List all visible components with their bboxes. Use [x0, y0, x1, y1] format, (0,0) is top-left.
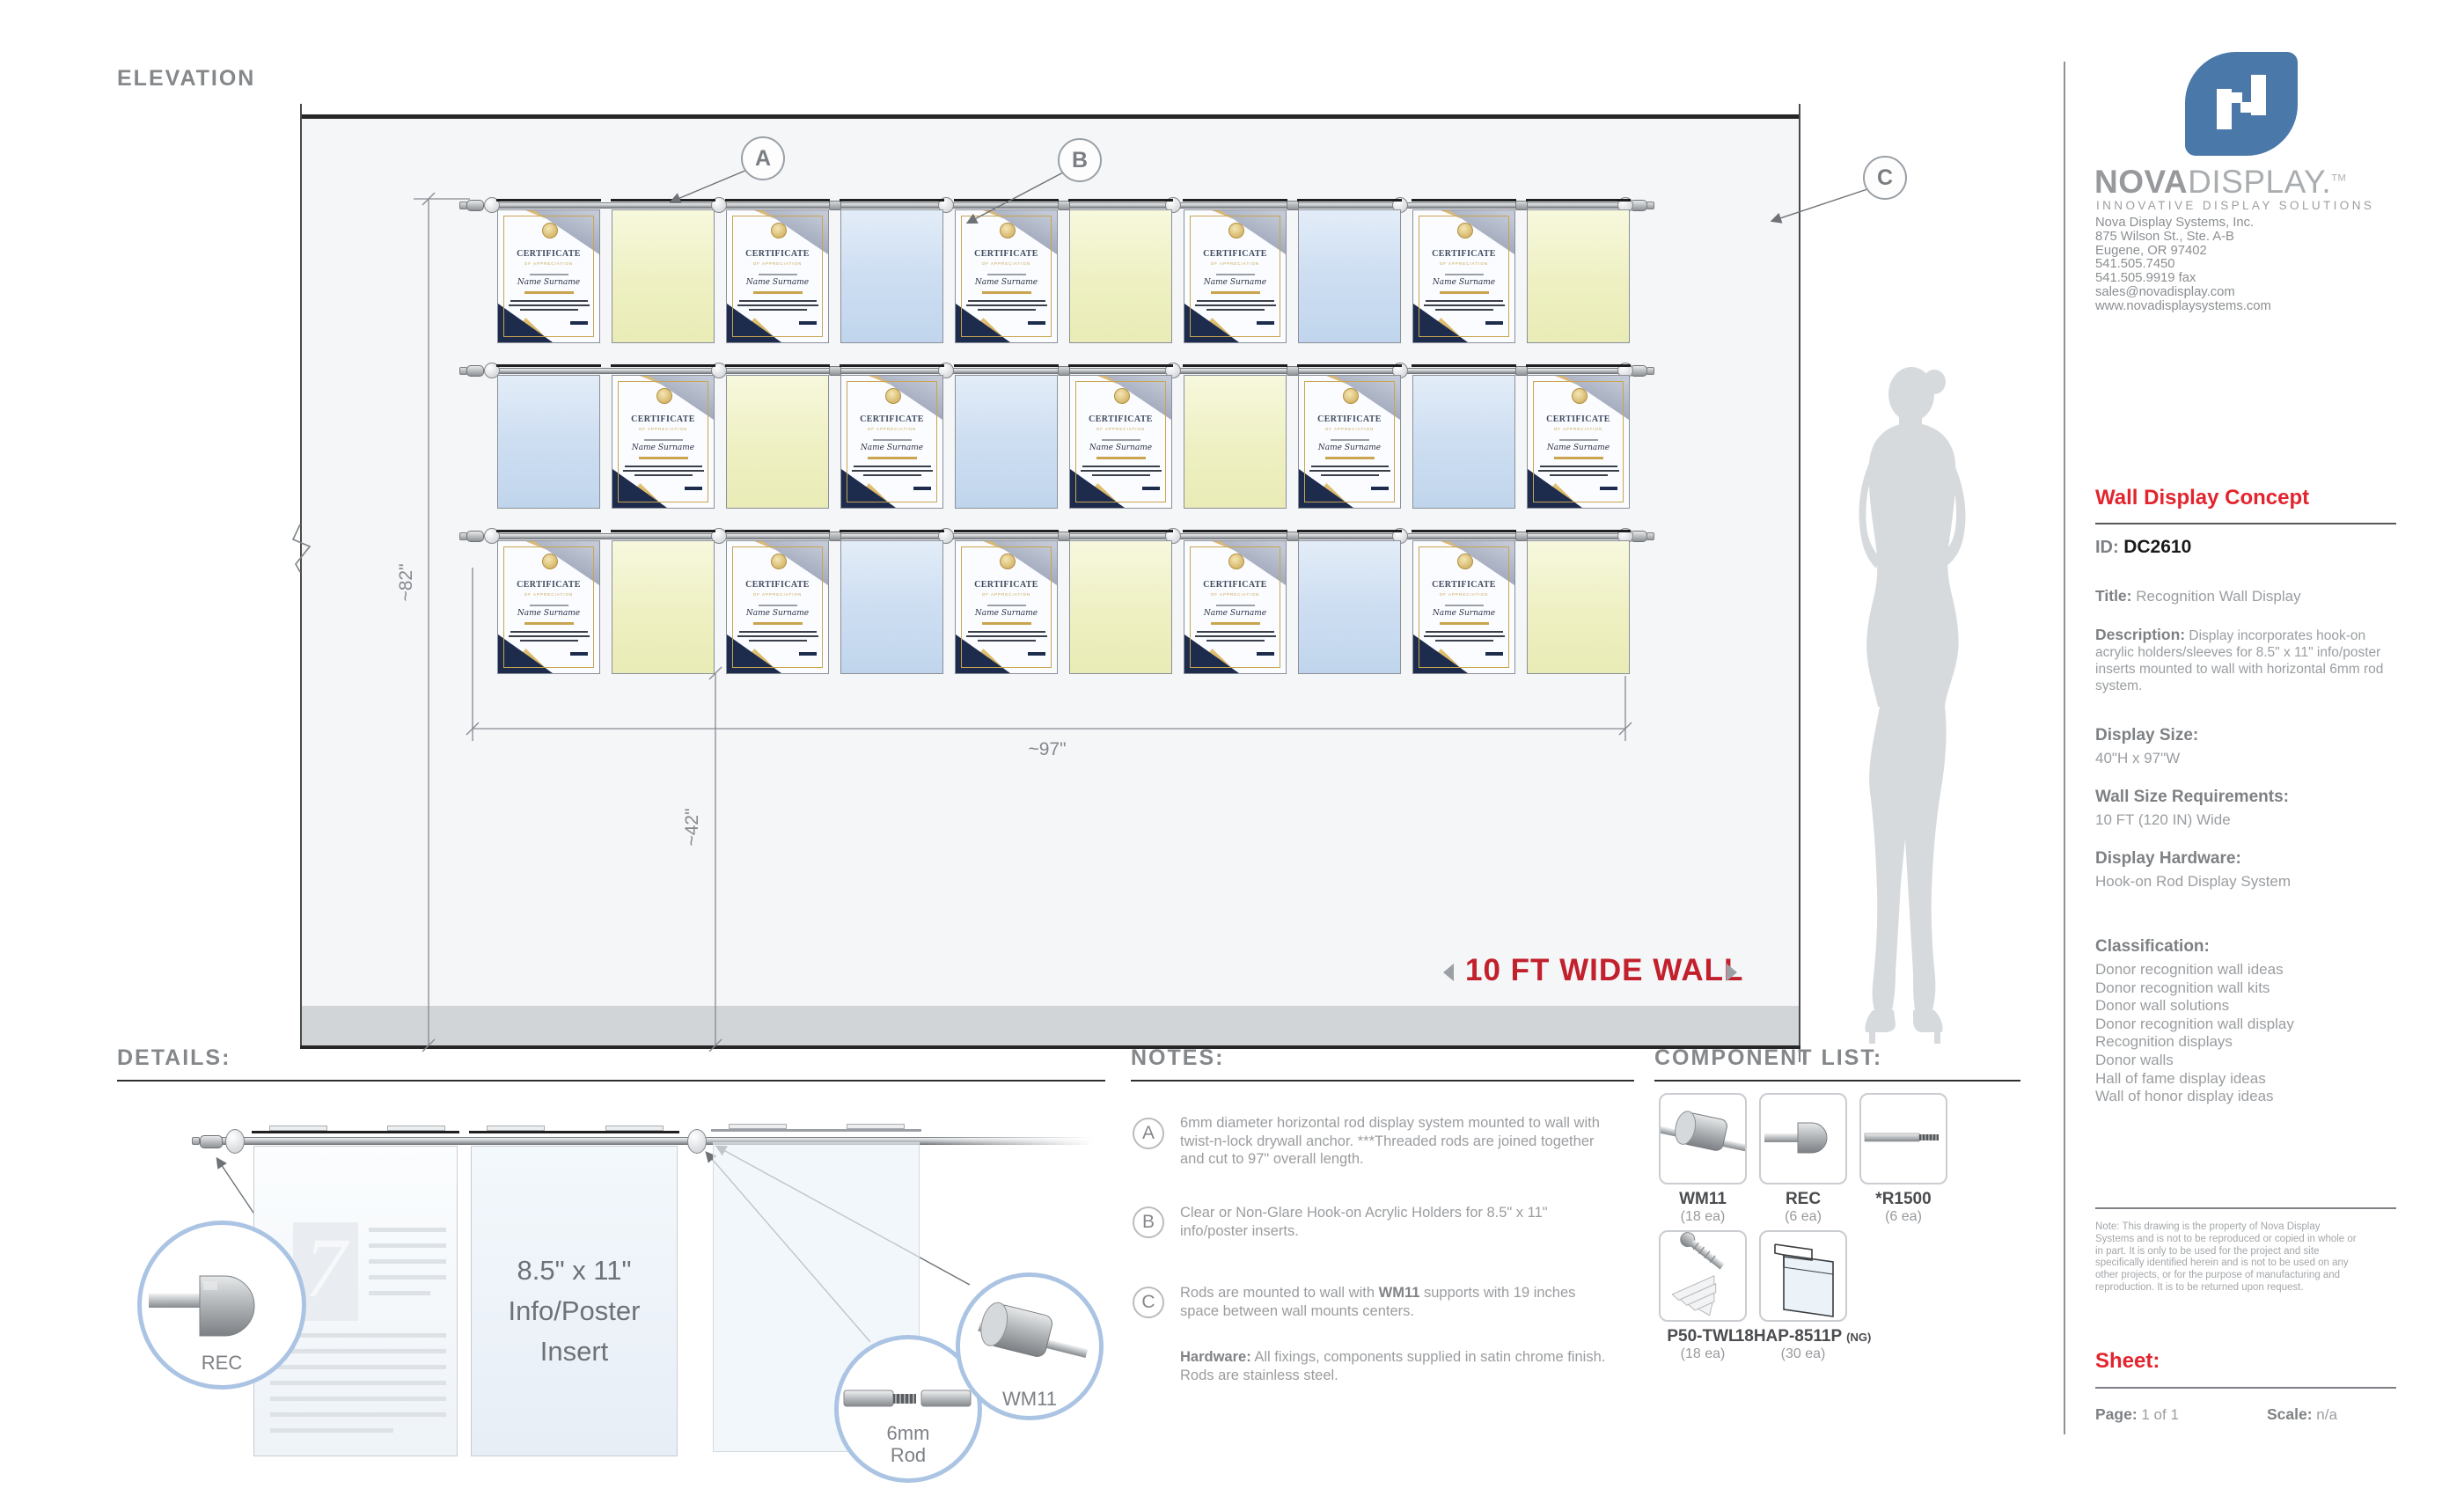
component-name-suffix: (NG) [1846, 1331, 1871, 1344]
note-rule [2095, 1207, 2396, 1209]
nova-logo-n [2185, 52, 2298, 156]
display-size-label: Display Size: [2095, 726, 2198, 744]
classification-item: Wall of honor display ideas [2095, 1088, 2405, 1106]
holder-top-edge [469, 1131, 679, 1133]
rec-end-tip [192, 1137, 200, 1145]
note-c-pre: Rods are mounted to wall with [1180, 1285, 1379, 1301]
id-label: ID: [2095, 538, 2123, 557]
classification-item: Donor recognition wall kits [2095, 979, 2405, 998]
classification-label-row: Classification: [2095, 938, 2405, 955]
holder-top-edge [711, 1129, 921, 1132]
dim-width-label: ~97" [1028, 739, 1066, 759]
classification-item: Hall of fame display ideas [2095, 1070, 2405, 1089]
id-value: DC2610 [2123, 537, 2191, 557]
concept-rule [2095, 523, 2396, 524]
wall-extent-arrow-right [1727, 964, 1737, 981]
component-name-text: 18HAP-8511P [1735, 1327, 1842, 1346]
r1500-icon [1861, 1095, 1946, 1183]
dim-97 [466, 568, 1632, 741]
holder-hook-tab [487, 1126, 545, 1131]
dim-82 [414, 193, 470, 1052]
note-c-text: Rods are mounted to wall with WM11 suppo… [1180, 1284, 1607, 1320]
classification-item: Recognition displays [2095, 1033, 2405, 1052]
address-line: 875 Wilson St., Ste. A-B [2095, 231, 2271, 245]
classification-item: Donor recognition wall ideas [2095, 961, 2405, 979]
insert-size-line: 8.5" x 11" [472, 1250, 677, 1291]
holder-hook-tab [269, 1126, 327, 1131]
classification-item: Donor walls [2095, 1052, 2405, 1070]
fax-number: 541.505.9919 fax [2095, 272, 2271, 286]
components-rule [1654, 1080, 2020, 1082]
sidebar-divider [2064, 62, 2065, 1434]
display-hardware-label: Display Hardware: [2095, 849, 2241, 868]
display-size-value: 40"H x 97"W [2095, 750, 2405, 766]
dim-42 [709, 667, 722, 1052]
display-size-label-row: Display Size: [2095, 727, 2405, 744]
email-address: sales@novadisplay.com [2095, 286, 2271, 300]
page-label: Page: [2095, 1405, 2138, 1423]
component-qty: (6 ea) [1833, 1209, 1974, 1225]
title-label: Title: [2095, 587, 2132, 605]
scale-label: Scale: [2267, 1405, 2313, 1423]
page-value: 1 of 1 [2138, 1406, 2179, 1423]
callout-a: A [741, 136, 785, 180]
note-c-bold: WM11 [1379, 1285, 1420, 1301]
components-heading: COMPONENT LIST: [1654, 1045, 1882, 1071]
note-a-text: 6mm diameter horizontal rod display syst… [1180, 1114, 1607, 1169]
component-box-wm11 [1659, 1093, 1747, 1184]
description-label: Description: [2095, 626, 2185, 643]
brand-tagline: INNOVATIVE DISPLAY SOLUTIONS [2096, 199, 2374, 212]
sheet-rule [2095, 1387, 2396, 1389]
display-hardware-value: Hook-on Rod Display System [2095, 873, 2405, 890]
phone-number: 541.505.7450 [2095, 258, 2271, 272]
title-field: Title: Recognition Wall Display [2095, 588, 2405, 605]
wall-extent-arrow-left [1443, 964, 1454, 981]
scale-person-silhouette [1859, 367, 1965, 1044]
component-name: *R1500 [1833, 1190, 1974, 1209]
wall-size-value: 10 FT (120 IN) Wide [2095, 811, 2405, 828]
id-field: ID: DC2610 [2095, 539, 2405, 556]
nova-logo-icon [2185, 52, 2298, 156]
dim-height-label: ~82" [396, 563, 416, 601]
classification-list: Donor recognition wall ideasDonor recogn… [2095, 961, 2405, 1106]
note-b-badge: B [1133, 1206, 1164, 1238]
description-field: Description: Display incorporates hook-o… [2095, 627, 2405, 694]
brand-bold: NOVA [2094, 164, 2188, 200]
detail-insert-placeholder: 8.5" x 11" Info/Poster Insert [471, 1146, 678, 1456]
insert-word-line: Insert [472, 1331, 677, 1372]
holder-hook-tab [729, 1124, 787, 1129]
wm11-detail-callout: WM11 [956, 1272, 1104, 1420]
classification-label: Classification: [2095, 937, 2210, 956]
holder-hook-tab [387, 1126, 445, 1131]
notes-rule [1131, 1080, 1634, 1082]
component-box-18hap [1759, 1230, 1847, 1322]
title-value: Recognition Wall Display [2132, 588, 2301, 605]
wm11-callout-label: WM11 [960, 1388, 1099, 1411]
brand-light: DISPLAY. [2188, 164, 2331, 200]
component-box-p50twl [1659, 1230, 1747, 1322]
wm11-mount-2 [687, 1129, 707, 1154]
note-c-badge: C [1133, 1287, 1164, 1318]
brand-tm: TM [2331, 173, 2346, 184]
rec-callout-label: REC [142, 1352, 302, 1375]
component-box-rec [1759, 1093, 1847, 1184]
notes-heading: NOTES: [1131, 1045, 1224, 1071]
wm11-mount-1 [225, 1129, 245, 1154]
note-a-badge: A [1133, 1118, 1164, 1149]
holder-top-edge [252, 1131, 459, 1133]
rec-end-cap [200, 1135, 223, 1148]
holder-hook-tab [847, 1124, 905, 1129]
insert-type-line: Info/Poster [472, 1291, 677, 1331]
concept-title: Wall Display Concept [2095, 486, 2309, 510]
rod-callout-label-2: Rod [839, 1444, 978, 1466]
drawing-sheet: ELEVATION CERTIFICATEOF APPRECIATIONName… [0, 0, 2464, 1496]
wall-size-label: Wall Size Requirements: [2095, 788, 2289, 806]
holder-hook-tab [605, 1126, 664, 1131]
rod-fade [924, 1134, 1109, 1147]
address-line: Eugene, OR 97402 [2095, 245, 2271, 259]
scale-value: n/a [2313, 1406, 2337, 1423]
rec-icon [1761, 1095, 1845, 1183]
callout-c: C [1863, 156, 1907, 200]
address-line: Nova Display Systems, Inc. [2095, 216, 2271, 231]
details-rule [117, 1080, 1105, 1082]
p50-twl-icon [1661, 1232, 1745, 1320]
classification-item: Donor recognition wall display [2095, 1016, 2405, 1034]
wall-size-label-row: Wall Size Requirements: [2095, 788, 2405, 805]
note-hardware-label: Hardware: [1180, 1349, 1251, 1365]
wall-width-label: 10 FT WIDE WALL [1465, 953, 1743, 988]
scale-field: Scale: n/a [2267, 1406, 2399, 1423]
note-b-text: Clear or Non-Glare Hook-on Acrylic Holde… [1180, 1204, 1607, 1240]
details-heading: DETAILS: [117, 1045, 231, 1071]
display-hardware-label-row: Display Hardware: [2095, 850, 2405, 867]
acrylic-holder-icon [1761, 1232, 1845, 1320]
website-url: www.novadisplaysystems.com [2095, 300, 2271, 314]
component-box-r1500 [1859, 1093, 1947, 1184]
break-mark [293, 524, 310, 572]
rod-callout-label-1: 6mm [839, 1422, 978, 1444]
rec-detail-callout: REC [137, 1221, 306, 1390]
callout-leaders [671, 170, 1867, 223]
classification-item: Donor wall solutions [2095, 997, 2405, 1016]
note-hardware: Hardware: All fixings, components suppli… [1180, 1348, 1607, 1384]
sheet-label: Sheet: [2095, 1349, 2160, 1374]
dim-floor-label: ~42" [682, 808, 702, 846]
component-name: 18HAP-8511P (NG) [1733, 1327, 1874, 1346]
component-qty: (30 ea) [1733, 1346, 1874, 1362]
company-address: Nova Display Systems, Inc. 875 Wilson St… [2095, 216, 2271, 314]
wm11-icon [1661, 1095, 1745, 1183]
property-note: Note: This drawing is the property of No… [2095, 1221, 2361, 1294]
brand-wordmark: NOVADISPLAY.TM [2094, 164, 2346, 201]
callout-b: B [1058, 138, 1102, 182]
